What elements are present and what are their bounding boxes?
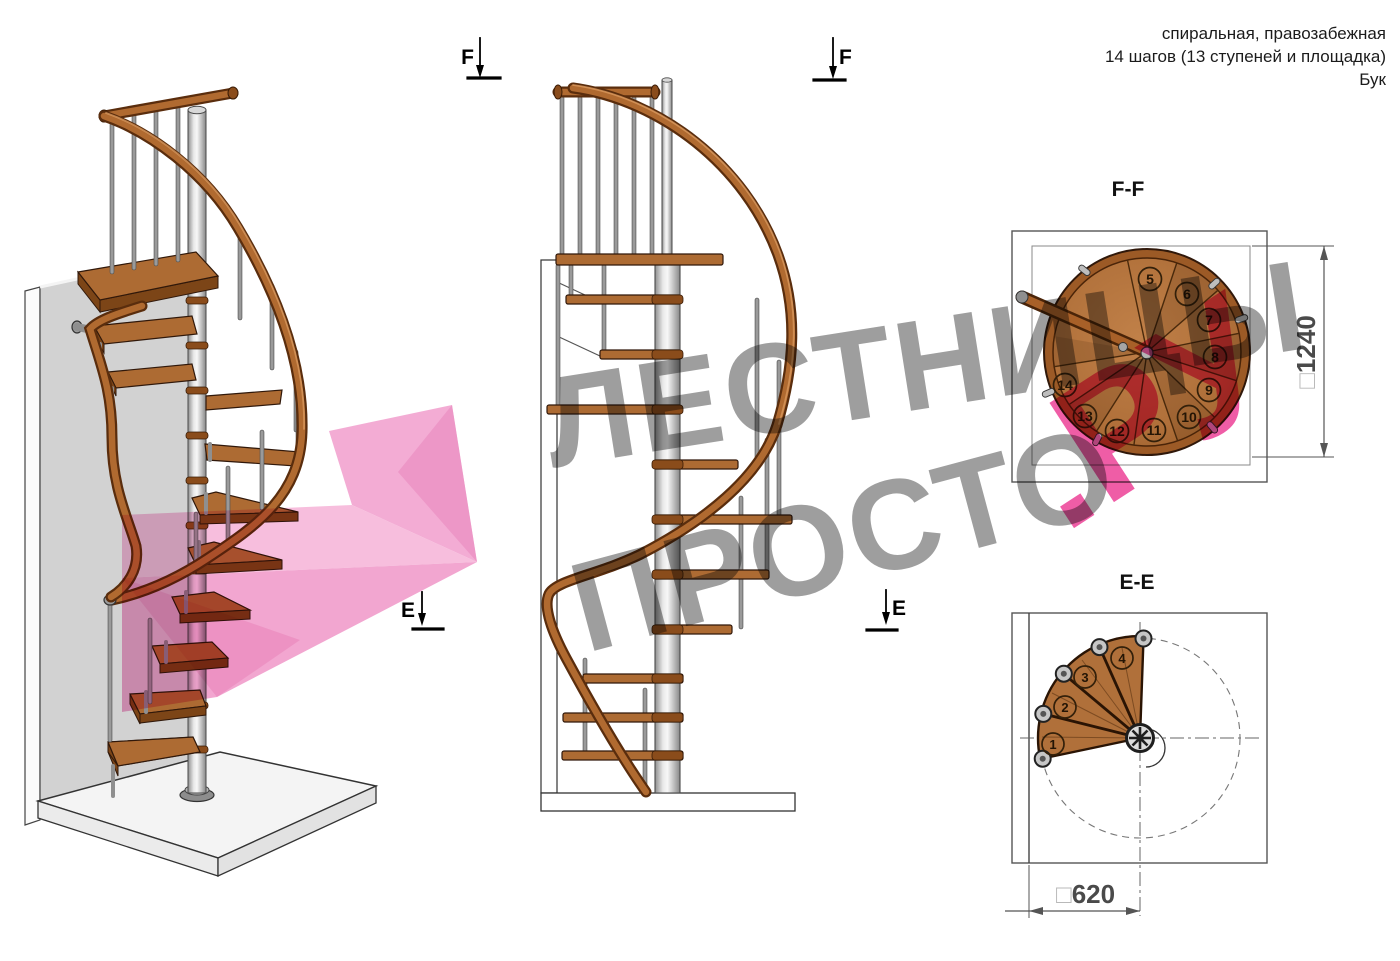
section-ee: E-E [1005, 571, 1267, 918]
iso-view [25, 87, 477, 876]
marker-f-right-letter: F [839, 46, 852, 69]
wall-section [541, 260, 557, 793]
technical-drawing-page: F-F [0, 0, 1400, 961]
step-number: 6 [1183, 286, 1191, 302]
ee-pole-wheel [1127, 725, 1166, 768]
newel-post [662, 80, 672, 266]
bracket-line [557, 336, 600, 356]
svg-text:□620: □620 [1056, 879, 1115, 909]
step-number: 9 [1205, 382, 1213, 398]
annotation-type: спиральная, правозабежная [1105, 22, 1386, 45]
step-number: 3 [1081, 670, 1088, 685]
step-number: 4 [1118, 651, 1126, 666]
step-number: 11 [1147, 422, 1162, 438]
step-number: 8 [1211, 349, 1219, 365]
marker-e-right: E [867, 590, 906, 630]
section-ff: F-F [1012, 178, 1334, 482]
ff-dim-value: 1240 [1291, 315, 1321, 373]
step-number: 14 [1057, 377, 1073, 393]
elevation-view [541, 78, 795, 811]
step-number: 13 [1077, 408, 1093, 424]
step-number: 7 [1205, 312, 1213, 328]
section-ff-label: F-F [1112, 178, 1145, 201]
staircase-drawing: F-F [0, 0, 1400, 961]
annotation: спиральная, правозабежная 14 шагов (13 с… [1105, 22, 1386, 91]
step-number: 1 [1049, 737, 1056, 752]
step-number: 10 [1181, 409, 1197, 425]
marker-f-left-letter: F [461, 46, 474, 69]
marker-e-left-letter: E [401, 599, 415, 622]
step-number: 12 [1109, 423, 1125, 439]
ee-dim-symbol: □ [1056, 879, 1072, 909]
ff-dim-symbol: □ [1291, 373, 1321, 389]
section-ee-label: E-E [1119, 571, 1154, 594]
marker-f-left: F [461, 38, 500, 78]
annotation-material: Бук [1105, 68, 1386, 91]
ee-dim-value: 620 [1072, 879, 1115, 909]
step-number: 2 [1061, 700, 1068, 715]
wall-edge [25, 287, 40, 825]
svg-text:□1240: □1240 [1291, 315, 1321, 389]
marker-e-right-letter: E [892, 597, 906, 620]
step-number: 5 [1146, 271, 1154, 287]
ff-dimension: □1240 [1252, 246, 1334, 457]
marker-f-right: F [814, 38, 852, 80]
newel-cap [662, 78, 672, 82]
ee-dimension: □620 [1005, 865, 1140, 918]
floor-section [541, 793, 795, 811]
annotation-steps: 14 шагов (13 ступеней и площадка) [1105, 45, 1386, 68]
